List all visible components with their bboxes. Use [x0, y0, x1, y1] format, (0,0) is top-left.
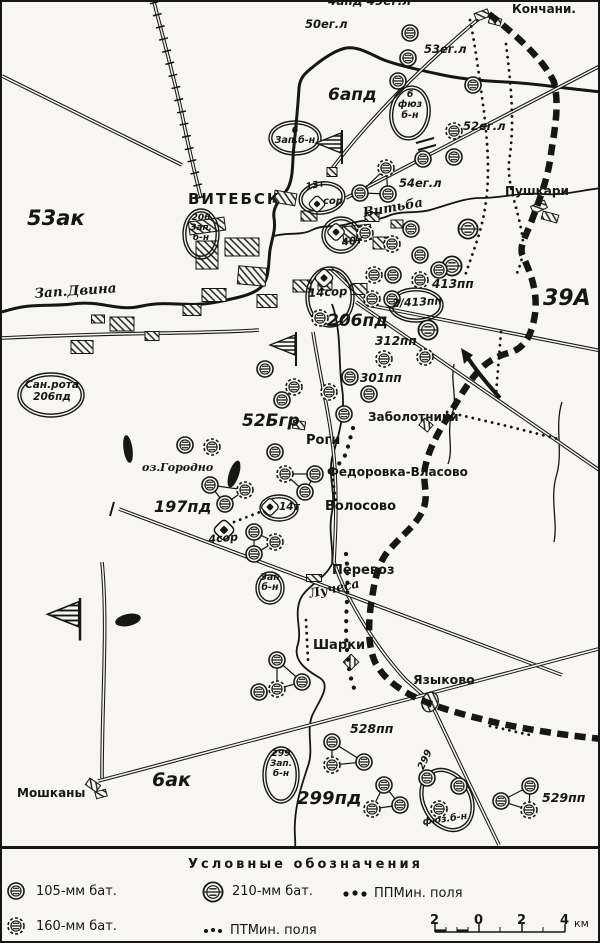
battery-105-icon — [376, 777, 392, 793]
town-symbol — [474, 9, 490, 21]
label-unit-fragment: 4апд 49ег.л — [328, 0, 411, 7]
city-block — [202, 289, 226, 302]
label-14sor: 14сор — [308, 285, 348, 300]
label-14t: 14т — [279, 502, 300, 514]
battery-105-icon — [465, 77, 481, 93]
label-regiment-301pp: 301пп — [360, 372, 402, 384]
scale-tick-0: 2 — [430, 914, 439, 927]
city-block — [225, 238, 259, 256]
battery-105-icon — [361, 386, 377, 402]
battery-105-icon — [342, 369, 358, 385]
battery-105-icon — [403, 221, 419, 237]
battery-105-icon — [324, 734, 340, 750]
town-symbol — [541, 211, 559, 223]
label-oval-6-zap-bn: 6 Зап.б-н — [270, 126, 320, 147]
legend-battery-160-icon — [8, 918, 24, 934]
battery-160-icon — [204, 439, 220, 455]
scale-tick-3: 4 — [560, 914, 569, 927]
label-division-206pd: 206пд — [327, 313, 388, 330]
battery-105-icon — [336, 406, 352, 422]
label-town-moshkany: Мошканы — [17, 787, 85, 799]
battery-105-icon — [415, 151, 431, 167]
town-symbol — [343, 654, 359, 670]
scale-bar — [435, 924, 565, 932]
battery-105-icon — [269, 652, 285, 668]
label-town-fedorovka: Федоровка-Власово — [327, 466, 468, 478]
label-2-413pp: 2/413пп — [392, 295, 442, 310]
legend-item-210: 210-мм бат. — [232, 885, 313, 898]
legend-item-105: 105-мм бат. — [36, 885, 117, 898]
battery-160-icon — [237, 482, 253, 498]
label-city-vitebsk: ВИТЕБСК — [188, 192, 281, 207]
battery-160-icon — [384, 236, 400, 252]
scale-tick-2: 2 — [517, 914, 526, 927]
label-division-6apd: 6апд — [328, 87, 377, 104]
label-4sor: 4сор — [208, 531, 239, 546]
battery-160-icon — [267, 534, 283, 550]
battery-160-icon — [378, 160, 394, 176]
label-brigade-52bgr: 52Бгр — [242, 413, 300, 430]
label-regiment-529pp: 529пп — [542, 792, 585, 805]
battery-160-icon — [277, 466, 293, 482]
battery-160-icon — [364, 291, 380, 307]
label-oval-299-zap-bn: 299 Зап. б-н — [264, 750, 298, 780]
legend-item-160: 160-мм бат. — [36, 920, 117, 933]
battery-210-icon — [458, 219, 477, 238]
battery-105-icon — [419, 770, 435, 786]
label-town-rogi: Роги — [306, 434, 340, 447]
scale-tick-1: 0 — [474, 914, 483, 927]
battery-160-icon — [312, 310, 328, 326]
battery-160-icon — [521, 802, 537, 818]
town-symbol — [307, 575, 322, 582]
legend-battery-210-icon — [203, 882, 222, 901]
label-oval-206-zap-bn: 206 Зап. б-н — [180, 214, 222, 244]
city-block — [92, 315, 105, 323]
label-regiment-312pp: 312пп — [375, 335, 417, 347]
city-block — [110, 317, 134, 331]
label-regiment-50egl: 50ег.л — [305, 19, 348, 31]
battery-210-icon — [418, 320, 437, 339]
label-regiment-53egl: 53ег.л — [424, 44, 467, 56]
battery-105-icon — [177, 437, 193, 453]
double-tick — [416, 138, 436, 150]
battery-105-icon — [257, 361, 273, 377]
label-oval-6-fuz-bn: 6 фюз б-н — [390, 90, 430, 121]
label-regiment-54egl: 54ег.л — [399, 178, 442, 190]
battery-160-icon — [366, 267, 382, 283]
legend-item-ptmin: ПТМин. поля — [230, 924, 317, 937]
legend-title: Условные обозначения — [188, 858, 423, 871]
hq-flag-icon — [270, 332, 296, 366]
batteries — [177, 25, 538, 818]
battery-105-icon — [246, 524, 262, 540]
legend-pp-mines-icon — [343, 890, 366, 896]
label-town-zabolotniki: Заболотники — [368, 411, 459, 423]
hq-flag-icon — [48, 598, 81, 641]
battery-105-icon — [274, 392, 290, 408]
label-regiment-52egl: 52ег.л — [463, 121, 506, 133]
label-division-299pd: 299пд — [297, 790, 362, 808]
military-map: 4апд 49ег.л 50ег.л 53ег.л 52ег.л 54ег.л … — [0, 0, 600, 943]
city-block — [145, 332, 159, 341]
city-block — [71, 341, 93, 354]
label-regiment-528pp: 528пп — [350, 723, 393, 736]
city-block — [391, 220, 403, 228]
battery-105-icon — [390, 73, 406, 89]
legend-separator — [2, 846, 600, 849]
label-town-pushkari: Пушкари — [505, 185, 569, 197]
scale-unit: км — [574, 918, 589, 929]
battery-105-icon — [451, 778, 467, 794]
unit-oval — [409, 759, 484, 841]
label-army-39a: 39А — [543, 288, 591, 310]
battery-105-icon — [522, 778, 538, 794]
label-town-sharki: Шарки — [313, 639, 365, 652]
battery-105-icon — [385, 267, 401, 283]
legend-pt-mines-icon — [204, 928, 222, 933]
label-oval-zap-bn: Зап б-н — [256, 573, 284, 594]
battery-105-icon — [356, 754, 372, 770]
battery-105-icon — [297, 484, 313, 500]
battery-160-icon — [269, 681, 285, 697]
battery-105-icon — [251, 684, 267, 700]
label-town-volosovo: Волосово — [325, 500, 396, 513]
city-block — [257, 295, 277, 308]
battery-105-icon — [431, 262, 447, 278]
battery-160-icon — [417, 349, 433, 365]
label-division-197pd: 197пд — [154, 499, 211, 515]
legend-item-ppmin: ППМин. поля — [374, 887, 463, 900]
label-regiment-413pp: 413пп — [432, 278, 474, 290]
battery-105-icon — [246, 546, 262, 562]
battery-105-icon — [294, 674, 310, 690]
battery-105-icon — [307, 466, 323, 482]
battery-160-icon — [364, 801, 380, 817]
city-block — [237, 266, 266, 286]
battery-105-icon — [202, 477, 218, 493]
battery-105-icon — [446, 149, 462, 165]
battery-160-icon — [412, 272, 428, 288]
label-town-perevoz: Перевоз — [332, 564, 395, 577]
battery-160-icon — [324, 757, 340, 773]
battery-160-icon — [286, 379, 302, 395]
label-town-konchani: Кончани. — [512, 3, 576, 15]
battery-160-icon — [446, 123, 462, 139]
battery-105-icon — [412, 247, 428, 263]
battery-105-icon — [352, 185, 368, 201]
label-corps-53ak: 53ак — [27, 208, 85, 229]
battery-105-icon — [217, 496, 233, 512]
legend-battery-105-icon — [8, 883, 24, 899]
battery-groups — [210, 168, 530, 810]
city-block — [183, 305, 201, 316]
town-symbol — [327, 168, 337, 177]
label-13t-sor: сор — [323, 196, 343, 207]
battery-105-icon — [493, 793, 509, 809]
battery-105-icon — [267, 444, 283, 460]
label-corps-6ak: 6ак — [152, 771, 191, 790]
battery-160-icon — [376, 351, 392, 367]
battery-105-icon — [402, 25, 418, 41]
battery-160-icon — [321, 384, 337, 400]
label-town-yazykovo: Языково — [413, 674, 475, 687]
battery-105-icon — [392, 797, 408, 813]
label-oval-san-rota: Сан.рота 206пд — [18, 380, 86, 403]
battery-105-icon — [400, 50, 416, 66]
label-lake-gorodno: оз.Городно — [142, 462, 213, 473]
